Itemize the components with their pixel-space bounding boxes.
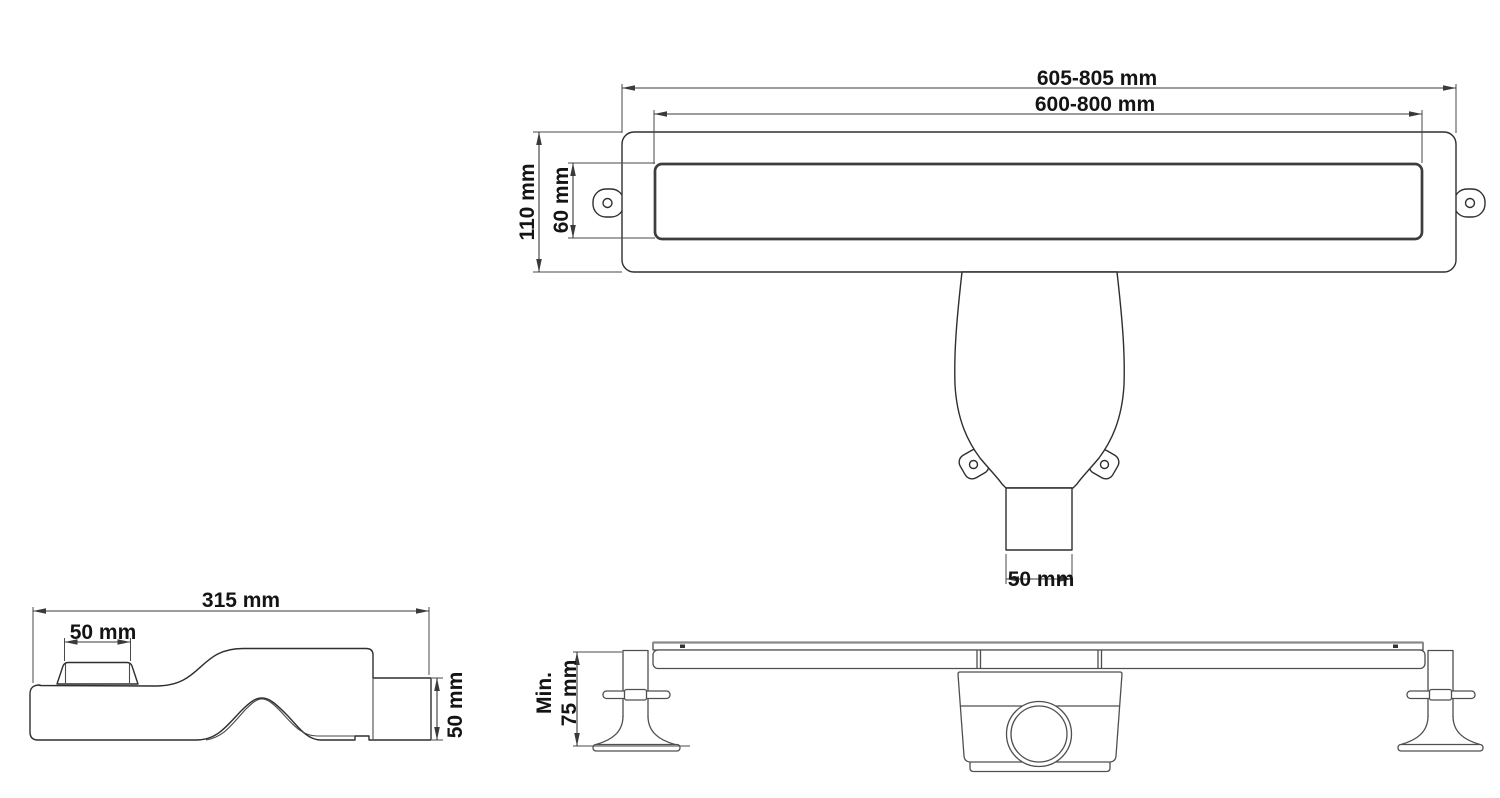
dim-label-inlet-width: 50 mm (70, 621, 137, 644)
plate-screw-left (680, 645, 685, 649)
plate-screw-right (1393, 645, 1398, 649)
dim-label-min-height-prefix: Min. (533, 672, 556, 714)
outlet-funnel (955, 272, 1124, 488)
foot-right-base (1398, 745, 1483, 752)
dim-label-outer-length: 605-805 mm (1037, 67, 1157, 90)
dim-label-cutout-length: 600-800 mm (1035, 93, 1155, 116)
technical-drawing-canvas: 605-805 mm 600-800 mm 110 mm 60 mm 50 mm (0, 0, 1500, 798)
dim-label-trap-length: 315 mm (202, 589, 280, 612)
drawing-svg: 605-805 mm 600-800 mm 110 mm 60 mm 50 mm (0, 0, 1500, 798)
dim-label-outlet-width: 50 mm (1008, 568, 1075, 591)
mounting-tab-right-body (1454, 189, 1485, 217)
foot-left-nut (625, 690, 647, 701)
mounting-tab-left-body (593, 189, 624, 217)
dim-label-grate-width: 60 mm (550, 167, 573, 234)
mounting-tab-right (1454, 189, 1485, 217)
mounting-tab-left (593, 189, 624, 217)
siphon-outlet-outer (1007, 702, 1072, 767)
trap-inlet-collar (57, 663, 138, 685)
foot-left-base (593, 745, 680, 752)
foot-right-nut (1430, 690, 1452, 701)
dim-label-body-width: 110 mm (516, 163, 539, 240)
dim-label-min-height-value: 75 mm (558, 660, 581, 727)
channel-trough (653, 650, 1425, 669)
outlet-pipe (1006, 488, 1072, 550)
top-plate (653, 643, 1423, 651)
channel-grate (655, 164, 1422, 239)
dim-label-outlet-height: 50 mm (444, 672, 467, 739)
